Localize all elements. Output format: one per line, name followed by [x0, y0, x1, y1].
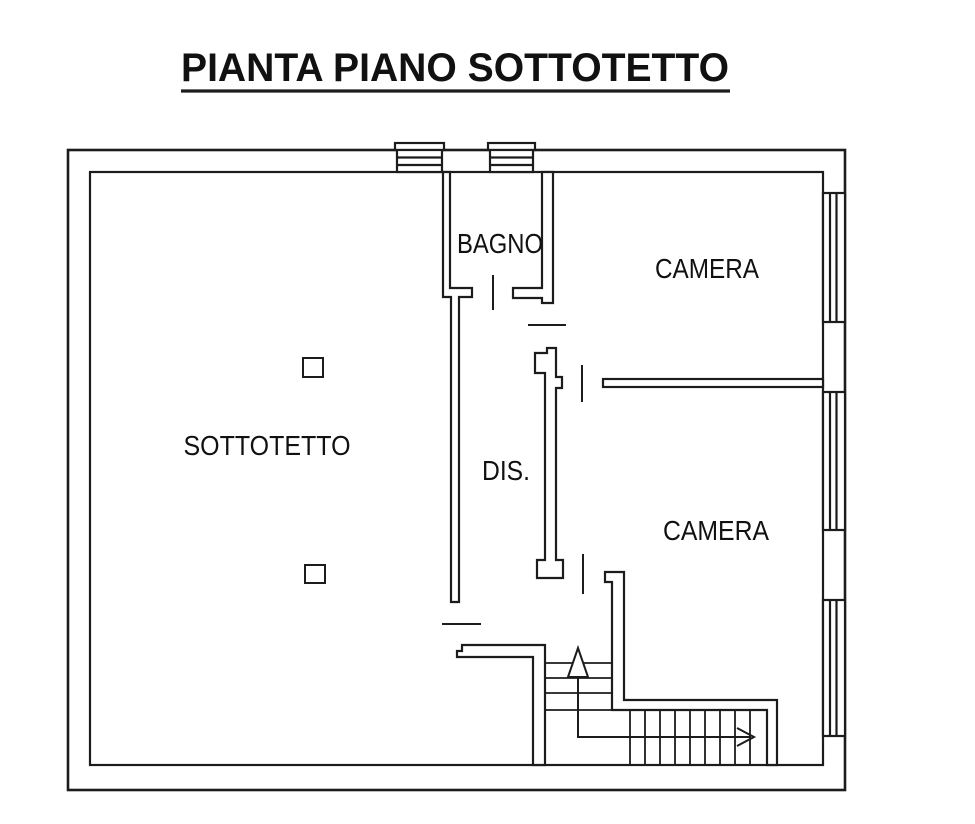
room-label-sottotetto: SOTTOTETTO — [184, 430, 351, 461]
room-label-bagno: BAGNO — [457, 228, 543, 259]
stair-left-wall — [457, 645, 545, 765]
top-window-1 — [395, 143, 444, 172]
room-label-camera-top: CAMERA — [655, 253, 759, 284]
floor-plan-page: PIANTA PIANO SOTTOTETTO BAGNO CAMERA CAM… — [0, 0, 975, 824]
page-title: PIANTA PIANO SOTTOTETTO — [181, 46, 729, 90]
right-window-2 — [823, 392, 845, 530]
top-window-2 — [488, 143, 535, 172]
right-window-1 — [823, 193, 845, 322]
floor-plan-svg: PIANTA PIANO SOTTOTETTO BAGNO CAMERA CAM… — [0, 0, 975, 824]
inter-camera-wall — [603, 379, 823, 387]
room-label-camera-bottom: CAMERA — [663, 515, 769, 546]
pillar-2 — [305, 565, 325, 583]
room-label-dis: DIS. — [482, 455, 530, 486]
pillar-1 — [303, 358, 323, 377]
corridor-wall — [535, 348, 563, 578]
right-window-3 — [823, 600, 845, 736]
